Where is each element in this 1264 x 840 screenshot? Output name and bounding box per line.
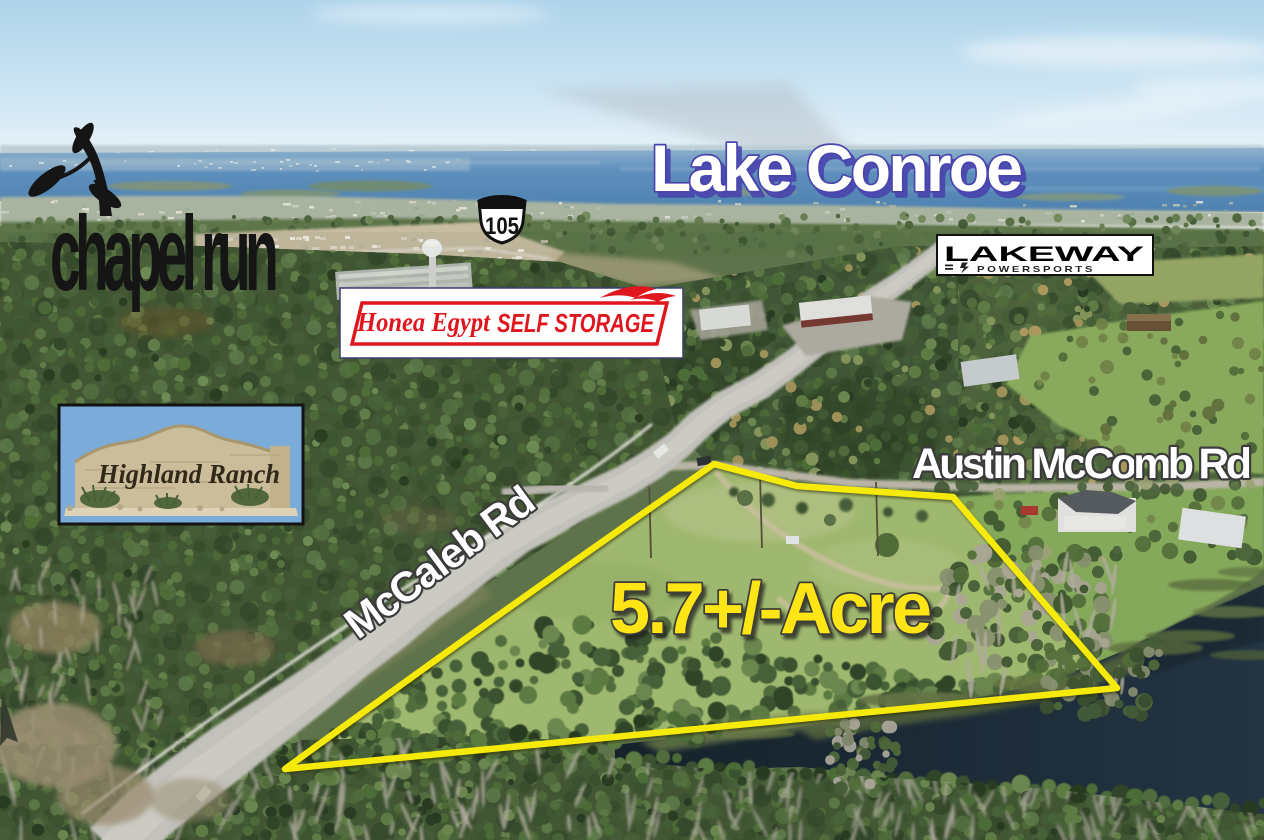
svg-text:105: 105 (485, 213, 519, 240)
svg-text:chapel run: chapel run (50, 195, 278, 313)
svg-text:Honea Egypt: Honea Egypt (356, 307, 491, 337)
svg-text:Lake Conroe: Lake Conroe (651, 131, 1023, 205)
svg-text:SELF STORAGE: SELF STORAGE (497, 308, 655, 338)
svg-text:POWERSPORTS: POWERSPORTS (977, 264, 1095, 274)
svg-text:LAKEWAY: LAKEWAY (944, 243, 1144, 266)
svg-text:Highland Ranch: Highland Ranch (97, 459, 280, 489)
svg-text:5.7+/-Acre: 5.7+/-Acre (610, 569, 932, 649)
svg-text:Austin McComb Rd: Austin McComb Rd (912, 440, 1252, 488)
